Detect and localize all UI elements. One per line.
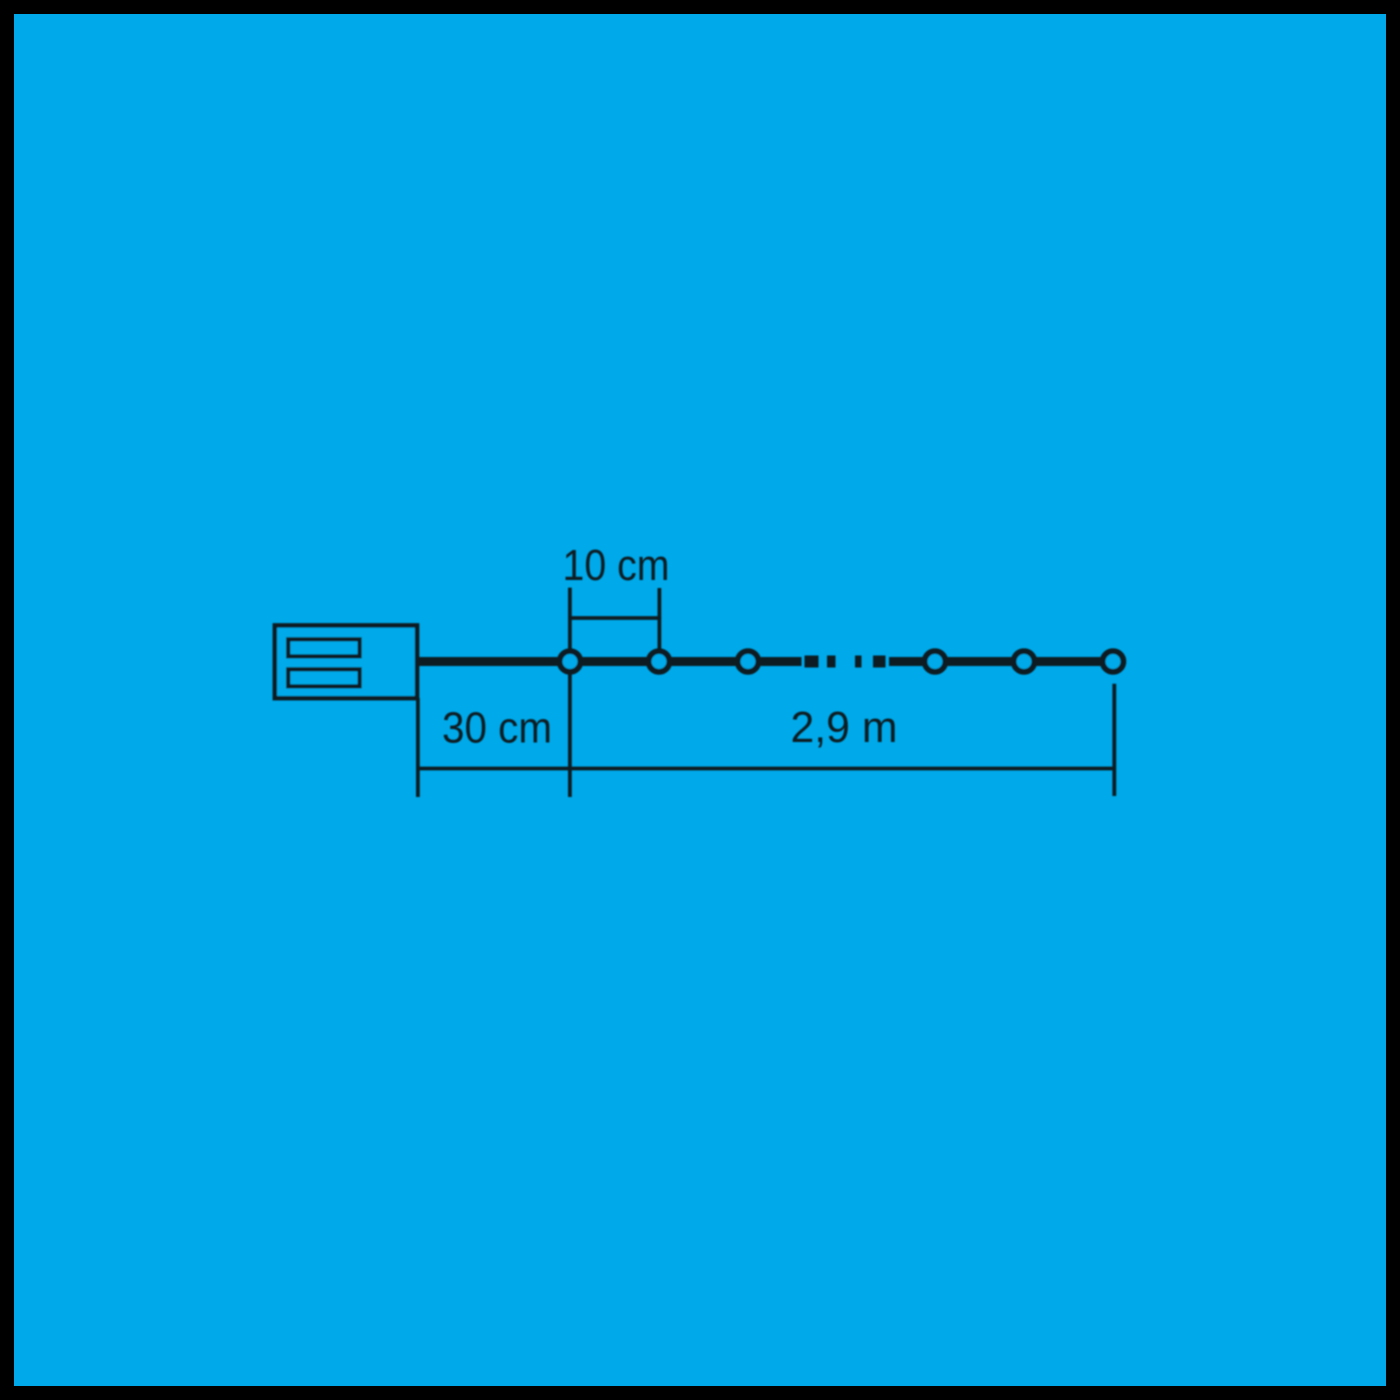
svg-text:2,9 m: 2,9 m bbox=[791, 703, 898, 752]
svg-text:30 cm: 30 cm bbox=[442, 703, 552, 752]
svg-text:10 cm: 10 cm bbox=[563, 541, 670, 590]
